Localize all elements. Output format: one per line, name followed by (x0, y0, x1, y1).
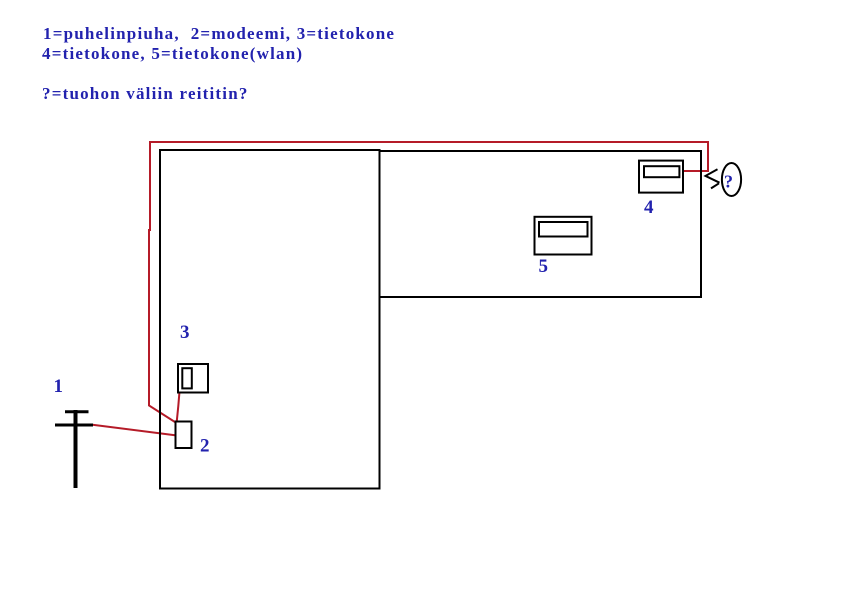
svg-text:1: 1 (54, 376, 64, 397)
svg-text:2: 2 (200, 436, 210, 457)
svg-text:?=tuohon väliin reititin?: ?=tuohon väliin reititin? (42, 84, 249, 103)
svg-text:4: 4 (644, 197, 654, 218)
svg-text:1=puhelinpiuha, 2=modeemi, 3=: 1=puhelinpiuha, 2=modeemi, 3=tietokone (43, 24, 395, 43)
svg-text:5: 5 (539, 256, 549, 277)
svg-text:?: ? (724, 172, 733, 192)
svg-text:3: 3 (180, 322, 190, 343)
svg-text:4=tietokone, 5=tietokone(wlan): 4=tietokone, 5=tietokone(wlan) (42, 44, 303, 63)
